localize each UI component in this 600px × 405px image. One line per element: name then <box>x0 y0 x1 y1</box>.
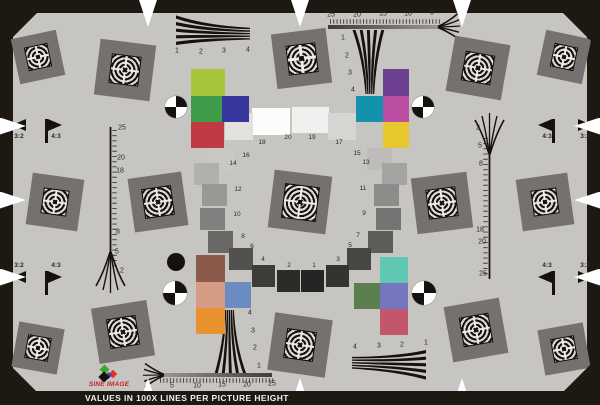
ring-gray-patch <box>301 270 324 292</box>
ruler-bottom-label: 25 <box>268 381 276 388</box>
bullseye-marker-icon <box>412 96 434 118</box>
registration-marker-icon <box>40 187 69 216</box>
border-triangle-left-icon <box>0 192 26 209</box>
color-patch-upper-right <box>356 96 383 122</box>
wedge-bottom-center-label: 1 <box>257 363 261 370</box>
ring-patch-number: 8 <box>241 234 245 241</box>
wedge-bottom-right-label: 1 <box>424 340 428 347</box>
footer-bar: VALUES IN 100X LINES PER PICTURE HEIGHT <box>0 391 600 405</box>
ring-gray-patch <box>382 163 407 185</box>
chart-elements-layer: 20191817161514131211109876543213:24:33:2… <box>0 0 600 405</box>
color-patch-lower-right <box>380 283 408 309</box>
wedge-top-left-label: 1 <box>175 48 179 55</box>
wedge-top-center-label: 2 <box>345 53 349 60</box>
aspect-flag-label: 3:2 <box>14 134 23 141</box>
marker-center-dot <box>53 200 58 205</box>
bullseye-marker-icon <box>412 281 436 305</box>
ring-gray-patch <box>229 248 253 270</box>
fiducial-square <box>94 39 156 101</box>
ring-gray-patch <box>328 113 356 140</box>
marker-center-dot <box>299 56 304 61</box>
marker-center-dot <box>123 68 128 73</box>
ring-gray-patch <box>252 108 290 135</box>
registration-marker-icon <box>550 43 578 71</box>
focus-dot-icon <box>167 253 185 271</box>
ruler-top-label: 10 <box>404 11 412 18</box>
registration-marker-icon <box>530 187 559 216</box>
bullseye-marker-icon <box>165 96 187 118</box>
wedge-top-center-label: 1 <box>341 35 345 42</box>
ruler-left-label: 2 <box>120 268 124 275</box>
ring-patch-number: 3 <box>336 257 340 264</box>
aspect-flag-label: 3:2 <box>580 134 589 141</box>
wedge-top-left-label: 3 <box>222 48 226 55</box>
ring-gray-patch <box>326 265 349 287</box>
marker-center-dot <box>561 346 566 351</box>
border-triangle-right-icon <box>574 192 600 209</box>
fiducial-square <box>268 170 333 235</box>
ruler-right-label: 18 <box>476 227 484 234</box>
aspect-flag-pole <box>45 119 48 143</box>
fiducial-square <box>128 172 189 233</box>
aspect-flag-pennant-icon <box>538 119 552 131</box>
ring-gray-patch <box>200 208 225 230</box>
ring-patch-number: 4 <box>261 257 265 264</box>
color-patch-lower-left <box>196 255 225 282</box>
aspect-flag-label: 4:3 <box>542 134 551 141</box>
wedge-bottom-center-label: 4 <box>248 310 252 317</box>
registration-marker-icon <box>108 53 141 86</box>
ring-patch-number: 19 <box>308 135 315 142</box>
aspect-flag-pole <box>45 271 48 295</box>
border-triangle-right-icon <box>574 269 600 286</box>
fiducial-square <box>411 172 473 234</box>
wedge-top-center-label: 4 <box>351 87 355 94</box>
marker-center-dot <box>561 54 566 59</box>
color-patch-lower-left <box>225 282 251 308</box>
registration-marker-icon <box>106 315 140 349</box>
ruler-bottom-label: 5 <box>170 383 174 390</box>
registration-marker-icon <box>284 41 317 74</box>
registration-marker-icon <box>141 185 175 219</box>
color-patch-lower-right <box>354 283 380 309</box>
wedge-bottom-right-label: 4 <box>353 344 357 351</box>
ruler-left-label: 8 <box>116 229 120 236</box>
marker-center-dot <box>156 200 161 205</box>
registration-marker-icon <box>459 313 494 348</box>
wedge-top-left-label: 4 <box>246 47 250 54</box>
registration-marker-icon <box>24 43 52 71</box>
ring-patch-number: 14 <box>229 161 236 168</box>
footer-text: VALUES IN 100X LINES PER PICTURE HEIGHT <box>85 393 289 403</box>
aspect-flag-pennant-icon <box>48 119 62 131</box>
registration-marker-icon <box>24 334 52 362</box>
aspect-flag-label: 4:3 <box>51 263 60 270</box>
aspect-flag-label: 4:3 <box>51 134 60 141</box>
color-patch-upper-left <box>191 122 224 148</box>
ruler-right-label: 20 <box>478 239 486 246</box>
fiducial-square <box>516 173 575 232</box>
ring-patch-number: 17 <box>335 140 342 147</box>
ruler-left-label: 20 <box>117 155 125 162</box>
ring-gray-patch <box>277 270 300 292</box>
resolution-test-chart: 20191817161514131211109876543213:24:33:2… <box>0 0 600 405</box>
border-triangle-left-icon <box>0 269 26 286</box>
ruler-right-label: 25 <box>479 271 487 278</box>
marker-center-dot <box>35 345 40 350</box>
registration-marker-icon <box>280 182 319 221</box>
brand-logo: SINE IMAGE <box>84 364 134 392</box>
ruler-right-label: 2 <box>476 125 480 132</box>
ruler-bottom-label: 10 <box>193 383 201 390</box>
marker-center-dot <box>120 329 125 334</box>
ring-patch-number: 10 <box>233 212 240 219</box>
ring-patch-number: 12 <box>234 187 241 194</box>
color-patch-upper-left <box>191 96 222 122</box>
ring-patch-number: 6 <box>250 244 254 251</box>
aspect-flag-label: 3:2 <box>14 263 23 270</box>
wedge-bottom-right-label: 3 <box>377 343 381 350</box>
color-patch-upper-right <box>383 122 409 148</box>
wedge-bottom-center-label: 2 <box>253 345 257 352</box>
fiducial-square <box>26 173 85 232</box>
ring-patch-number: 11 <box>360 186 367 193</box>
marker-center-dot <box>35 54 40 59</box>
ruler-left-label: 18 <box>116 168 124 175</box>
bullseye-marker-icon <box>163 281 187 305</box>
fiducial-square <box>91 300 155 364</box>
ring-gray-patch <box>376 208 401 230</box>
ring-gray-patch <box>202 184 227 206</box>
ring-patch-number: 5 <box>348 243 352 250</box>
aspect-flag-pole <box>552 119 555 143</box>
ring-gray-patch <box>368 231 393 253</box>
color-patch-lower-left <box>196 308 225 334</box>
ring-patch-number: 20 <box>284 135 291 142</box>
ruler-right-label: 8 <box>479 161 483 168</box>
ruler-top-label: 15 <box>379 11 387 18</box>
aspect-flag-label: 3:2 <box>580 263 589 270</box>
aspect-flag-pennant-icon <box>48 271 62 283</box>
fiducial-square <box>444 298 509 363</box>
ring-gray-patch <box>292 107 329 133</box>
fiducial-square <box>11 30 66 85</box>
color-patch-lower-right <box>380 309 408 335</box>
ring-patch-number: 2 <box>287 263 291 270</box>
color-patch-lower-left <box>196 282 225 308</box>
ruler-bottom-label: 20 <box>243 382 251 389</box>
border-triangle-top-icon <box>139 0 157 27</box>
ruler-top-label: 25 <box>327 12 335 19</box>
registration-marker-icon <box>425 186 458 219</box>
border-triangle-top-icon <box>291 0 309 27</box>
ruler-left-label: 5 <box>115 249 119 256</box>
fiducial-square <box>537 322 590 375</box>
aspect-flag-pennant-icon <box>538 271 552 283</box>
color-patch-upper-right <box>383 69 409 96</box>
aspect-flag-label: 4:3 <box>542 263 551 270</box>
brand-text: SINE IMAGE <box>84 382 134 389</box>
ring-gray-patch <box>347 248 371 270</box>
ring-patch-number: 9 <box>362 211 366 218</box>
fiducial-square <box>11 321 64 374</box>
registration-marker-icon <box>550 335 578 363</box>
color-patch-upper-left <box>222 96 249 122</box>
ruler-bottom-label: 15 <box>218 382 226 389</box>
marker-center-dot <box>475 65 480 70</box>
ring-patch-number: 13 <box>362 160 369 167</box>
border-triangle-top-icon <box>453 0 471 27</box>
marker-center-dot <box>440 201 445 206</box>
wedge-top-center-label: 3 <box>348 70 352 77</box>
wedge-bottom-right-label: 2 <box>400 342 404 349</box>
aspect-flag-pole <box>552 271 555 295</box>
ruler-top-label: 20 <box>353 12 361 19</box>
marker-center-dot <box>473 327 478 332</box>
marker-center-dot <box>543 200 548 205</box>
marker-center-dot <box>298 343 303 348</box>
ruler-top-label: 5 <box>430 10 434 17</box>
fiducial-square <box>446 36 511 101</box>
ring-patch-number: 18 <box>258 140 265 147</box>
wedge-bottom-center-label: 3 <box>251 328 255 335</box>
ring-patch-number: 1 <box>312 263 316 270</box>
ring-gray-patch <box>374 184 399 206</box>
registration-marker-icon <box>461 51 496 86</box>
ruler-left-label: 25 <box>118 125 126 132</box>
ring-patch-number: 7 <box>356 233 360 240</box>
wedge-top-left-label: 2 <box>199 49 203 56</box>
fiducial-square <box>267 312 333 378</box>
ring-gray-patch <box>252 265 275 287</box>
fiducial-square <box>270 27 331 88</box>
ruler-right-label: 5 <box>478 143 482 150</box>
marker-center-dot <box>298 200 303 205</box>
registration-marker-icon <box>283 328 317 362</box>
fiducial-square <box>537 30 592 85</box>
color-patch-upper-left <box>191 69 225 96</box>
color-patch-upper-right <box>383 96 409 122</box>
ring-patch-number: 16 <box>242 153 249 160</box>
ring-gray-patch <box>194 163 219 185</box>
ring-patch-number: 15 <box>353 151 360 158</box>
color-patch-lower-right <box>380 257 408 283</box>
